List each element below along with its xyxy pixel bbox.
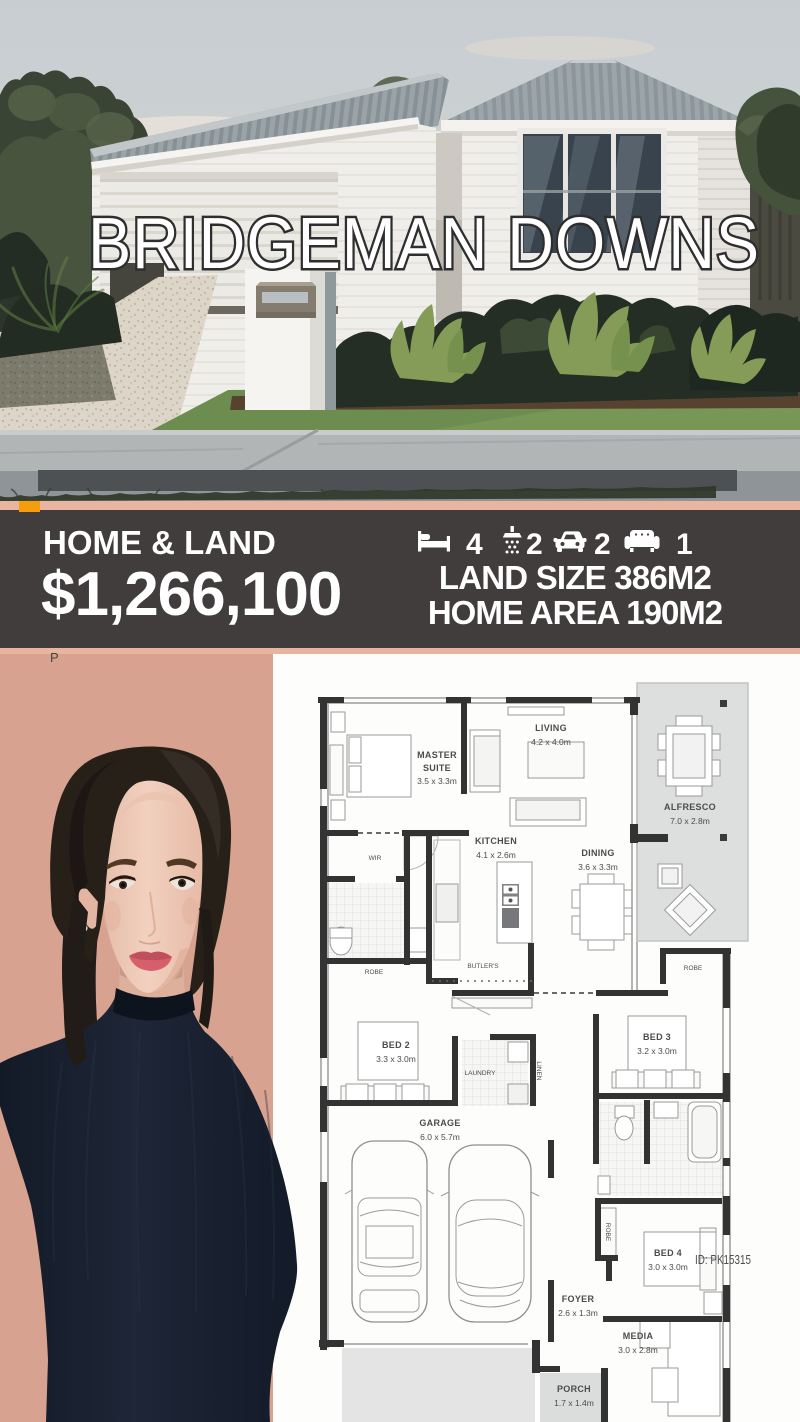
svg-text:ROBE: ROBE <box>684 965 703 972</box>
svg-text:ID: PK15315: ID: PK15315 <box>695 1252 751 1267</box>
svg-text:BED 3: BED 3 <box>643 1032 671 1042</box>
svg-text:4.1 x 2.6m: 4.1 x 2.6m <box>476 850 516 860</box>
svg-text:ALFRESCO: ALFRESCO <box>664 802 716 812</box>
svg-text:KITCHEN: KITCHEN <box>475 836 517 846</box>
svg-text:2: 2 <box>594 528 611 561</box>
svg-text:BUTLER'S: BUTLER'S <box>467 963 499 970</box>
svg-text:7.0 x 2.8m: 7.0 x 2.8m <box>670 816 710 826</box>
svg-text:MEDIA: MEDIA <box>623 1331 654 1341</box>
svg-text:2.6 x 1.3m: 2.6 x 1.3m <box>558 1308 598 1318</box>
svg-text:3.0 x 3.0m: 3.0 x 3.0m <box>648 1262 688 1272</box>
svg-text:FOYER: FOYER <box>562 1294 595 1304</box>
svg-text:BRIDGEMAN DOWNS: BRIDGEMAN DOWNS <box>88 204 760 284</box>
svg-text:ROBE: ROBE <box>604 1223 611 1242</box>
svg-text:BED 4: BED 4 <box>654 1248 682 1258</box>
svg-text:SUITE: SUITE <box>423 763 451 773</box>
svg-text:BED 2: BED 2 <box>382 1040 410 1050</box>
svg-text:3.6 x 3.3m: 3.6 x 3.3m <box>578 862 618 872</box>
svg-text:GARAGE: GARAGE <box>419 1118 460 1128</box>
svg-text:4.2 x 4.0m: 4.2 x 4.0m <box>531 737 571 747</box>
svg-text:LAUNDRY: LAUNDRY <box>465 1070 497 1077</box>
svg-text:DINING: DINING <box>581 848 614 858</box>
svg-text:4: 4 <box>466 528 483 561</box>
svg-text:LIVING: LIVING <box>535 723 567 733</box>
svg-text:ROBE: ROBE <box>365 969 384 976</box>
svg-text:WIR: WIR <box>369 855 382 862</box>
svg-text:LINEN: LINEN <box>535 1061 542 1080</box>
svg-text:3.3 x 3.0m: 3.3 x 3.0m <box>376 1054 416 1064</box>
svg-text:2: 2 <box>526 528 543 561</box>
svg-text:1.7 x 1.4m: 1.7 x 1.4m <box>554 1398 594 1408</box>
svg-text:3.0 x 2.8m: 3.0 x 2.8m <box>618 1345 658 1355</box>
svg-text:1: 1 <box>676 528 693 561</box>
svg-text:3.2 x 3.0m: 3.2 x 3.0m <box>637 1046 677 1056</box>
svg-text:PORCH: PORCH <box>557 1384 591 1394</box>
svg-text:3.5 x 3.3m: 3.5 x 3.3m <box>417 776 457 786</box>
svg-text:6.0 x 5.7m: 6.0 x 5.7m <box>420 1132 460 1142</box>
svg-text:MASTER: MASTER <box>417 750 457 760</box>
